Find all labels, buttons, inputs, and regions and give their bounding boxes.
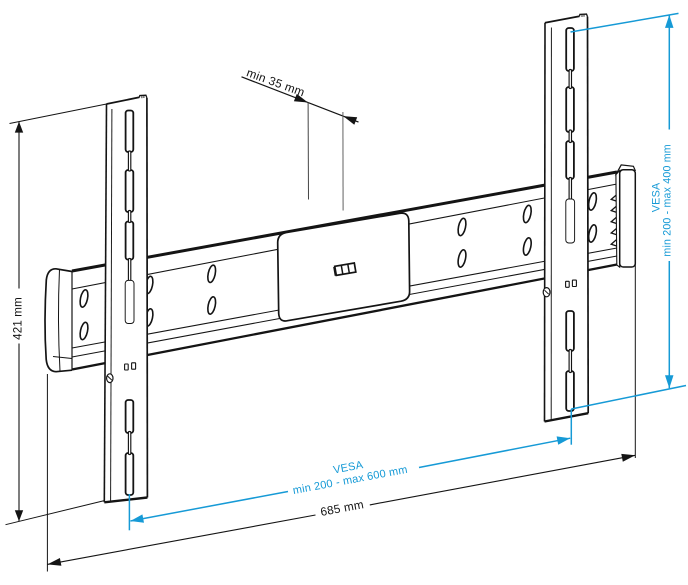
- svg-text:min 200 - max 400 mm: min 200 - max 400 mm: [661, 144, 673, 256]
- svg-text:min 35 mm: min 35 mm: [245, 65, 307, 99]
- svg-text:421 mm: 421 mm: [13, 297, 25, 340]
- svg-text:685 mm: 685 mm: [319, 497, 365, 519]
